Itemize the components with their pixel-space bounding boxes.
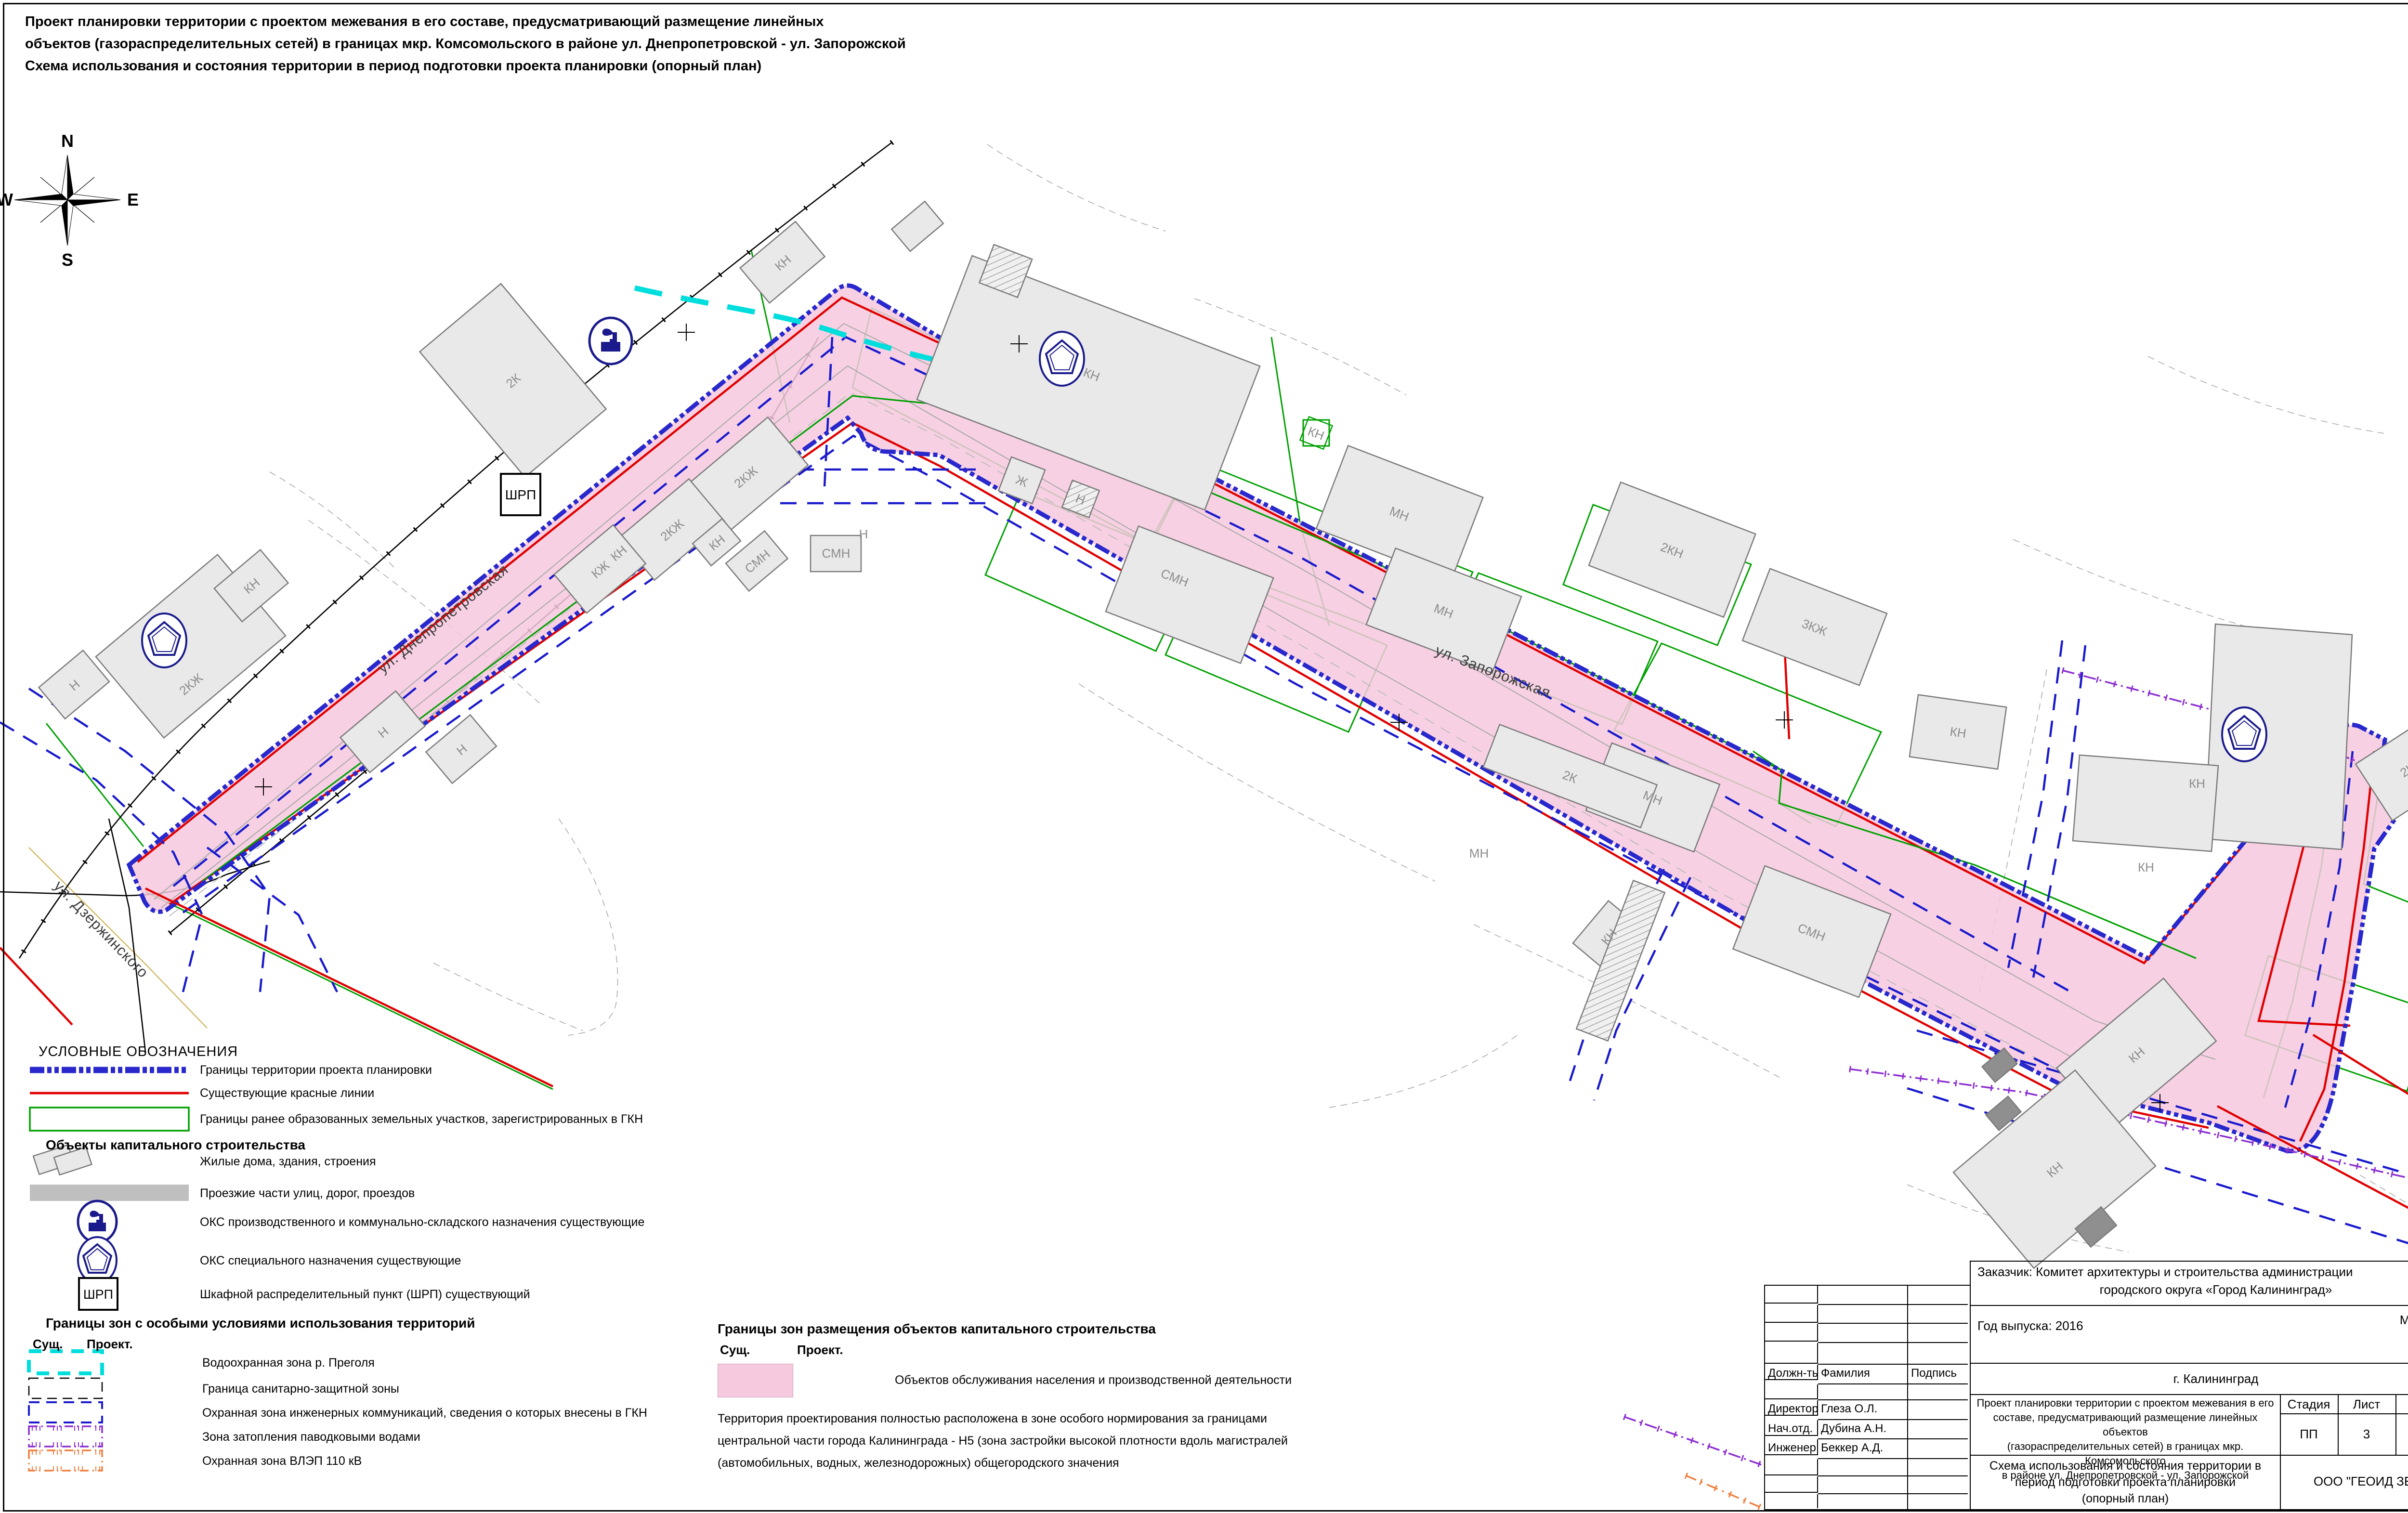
pentagon-icon — [2222, 707, 2266, 761]
legend-item: ОКС производственного и коммунально-скла… — [200, 1215, 644, 1229]
shrp-box: ШРП — [501, 474, 540, 515]
factory-icon — [589, 318, 632, 364]
svg-text:ШРП: ШРП — [83, 1287, 113, 1302]
pentagon-icon — [1040, 332, 1084, 386]
row-position: Нач.отд. — [1765, 1420, 1818, 1436]
scale-label: Масштаб — [2400, 1313, 2408, 1328]
customer-line2: городского округа «Город Калининград» — [1971, 1279, 2408, 1297]
legend2-note3: (автомобильных, водных, железнодорожных)… — [718, 1456, 1119, 1470]
street-label-dzerzhinskogo: ул. Дзержинского — [51, 877, 152, 981]
compass-rose: N E S W — [0, 131, 139, 270]
legend-item: Водоохранная зона р. Преголя — [202, 1356, 375, 1370]
legend-item: Проезжие части улиц, дорог, проездов — [200, 1187, 415, 1200]
titleblock-year-box: Год выпуска: 2016 Масштаб 1:1000 — [1970, 1305, 2408, 1364]
project-title-l1: Проект планировки территории с проектом … — [1971, 1396, 2280, 1410]
company-box: ООО "ГЕОИД ЗЕМ" — [2280, 1455, 2408, 1510]
pentagon-icon — [142, 613, 186, 667]
legend-item: Границы ранее образованных земельных уча… — [200, 1112, 643, 1126]
legend-col-existing: Сущ. — [33, 1337, 63, 1352]
city-box: г. Калининград — [1970, 1363, 2408, 1395]
buildings — [39, 201, 2408, 1268]
legend2-header: Границы зон размещения объектов капиталь… — [718, 1321, 1156, 1337]
customer-line1: Заказчик: Комитет архитектуры и строител… — [1971, 1262, 2408, 1279]
row-position: Директор — [1765, 1400, 1818, 1416]
scheme-box: Схема использования и состояния территор… — [1970, 1455, 2281, 1510]
legend-item: Шкафной распределительный пункт (ШРП) су… — [200, 1288, 530, 1302]
city-value: г. Калининград — [2173, 1371, 2259, 1386]
sheets-label-cell: Листов — [2395, 1394, 2408, 1414]
sheets-value-cell: 7 — [2395, 1413, 2408, 1456]
legend-col-project: Проект. — [87, 1337, 133, 1352]
sheet-title-line3: Схема использования и состояния территор… — [25, 55, 1181, 77]
building-label: КН — [1949, 724, 1967, 741]
building-label: КН — [1306, 424, 1326, 443]
row-name: Беккер А.Д. — [1818, 1439, 1908, 1459]
project-title-l2: составе, предусматривающий размещение ли… — [1971, 1410, 2280, 1439]
row-name: Глеза О.Л. — [1818, 1400, 1908, 1420]
sheet-title-line1: Проект планировки территории с проектом … — [25, 11, 1181, 33]
svg-text:ШРП: ШРП — [505, 487, 536, 502]
titleblock-customer-box: Заказчик: Комитет архитектуры и строител… — [1970, 1261, 2408, 1306]
signature-table: Должн-ть Фамилия Подпись Директор Глеза … — [1764, 1285, 1970, 1510]
scheme-l1: Схема использования и состояния территор… — [1971, 1458, 2280, 1474]
project-title-box: Проект планировки территории с проектом … — [1970, 1394, 2281, 1456]
stage-value-cell: ПП — [2280, 1413, 2339, 1456]
legend2-item: Объектов обслуживания населения и произв… — [895, 1373, 1292, 1387]
scheme-l2: период подготовки проекта планировки — [1971, 1474, 2280, 1490]
legend-item: Существующие красные линии — [200, 1086, 374, 1100]
row-name: Дубина А.Н. — [1818, 1420, 1908, 1440]
legend-item: Охранная зона ВЛЭП 110 кВ — [202, 1454, 362, 1468]
year-value: Год выпуска: 2016 — [1977, 1318, 2083, 1333]
legend-item: Зона затопления паводковыми водами — [202, 1430, 420, 1444]
col-name: Фамилия — [1818, 1365, 1908, 1384]
building-label: МН — [1469, 846, 1489, 861]
compass-s: S — [62, 250, 73, 270]
legend-item: ОКС специального назначения существующие — [200, 1254, 461, 1268]
sheet-title: Проект планировки территории с проектом … — [25, 11, 1181, 77]
legend2-note1: Территория проектирования полностью расп… — [718, 1412, 1267, 1426]
legend-swatches: ШРП — [25, 1056, 198, 1489]
legend-item: Граница санитарно-защитной зоны — [202, 1382, 399, 1396]
legend2-col-project: Проект. — [797, 1343, 843, 1357]
compass-w: W — [0, 190, 13, 209]
stage-label-cell: Стадия — [2280, 1394, 2339, 1414]
compass-n: N — [61, 131, 74, 151]
sheet-title-line2: объектов (газораспределительных сетей) в… — [25, 33, 1181, 55]
legend-item: Границы территории проекта планировки — [200, 1063, 432, 1077]
legend-item: Охранная зона инженерных коммуникаций, с… — [202, 1406, 647, 1420]
building-label: Н — [859, 527, 868, 541]
legend2-pink-swatch — [718, 1364, 793, 1397]
building-label: КН — [2138, 860, 2154, 874]
legend-item: Жилые дома, здания, строения — [200, 1155, 376, 1169]
legend-zones-header: Границы зон с особыми условиями использо… — [46, 1316, 475, 1331]
scheme-l3: (опорный план) — [1971, 1490, 2280, 1507]
company-name: ООО "ГЕОИД ЗЕМ" — [2314, 1474, 2408, 1488]
legend-oks-header: Объекты капитального строительства — [46, 1137, 305, 1153]
building-label: КН — [2189, 776, 2205, 791]
legend2-col-existing: Сущ. — [720, 1343, 750, 1357]
legend2-note2: центральной части города Калининграда - … — [718, 1434, 1288, 1448]
col-sign: Подпись — [1908, 1365, 1968, 1384]
compass-e: E — [127, 190, 139, 209]
sheet-value-cell: 3 — [2338, 1413, 2396, 1456]
col-position: Должн-ть — [1765, 1365, 1818, 1380]
sheet-label-cell: Лист — [2338, 1394, 2396, 1414]
plan-sheet: 2К КН КН Ж Н 2КЖ 2КЖ КЖ КН КН СМН СМН Н … — [0, 0, 2408, 1513]
building-label: СМН — [822, 546, 851, 561]
row-position: Инженер — [1765, 1439, 1818, 1455]
